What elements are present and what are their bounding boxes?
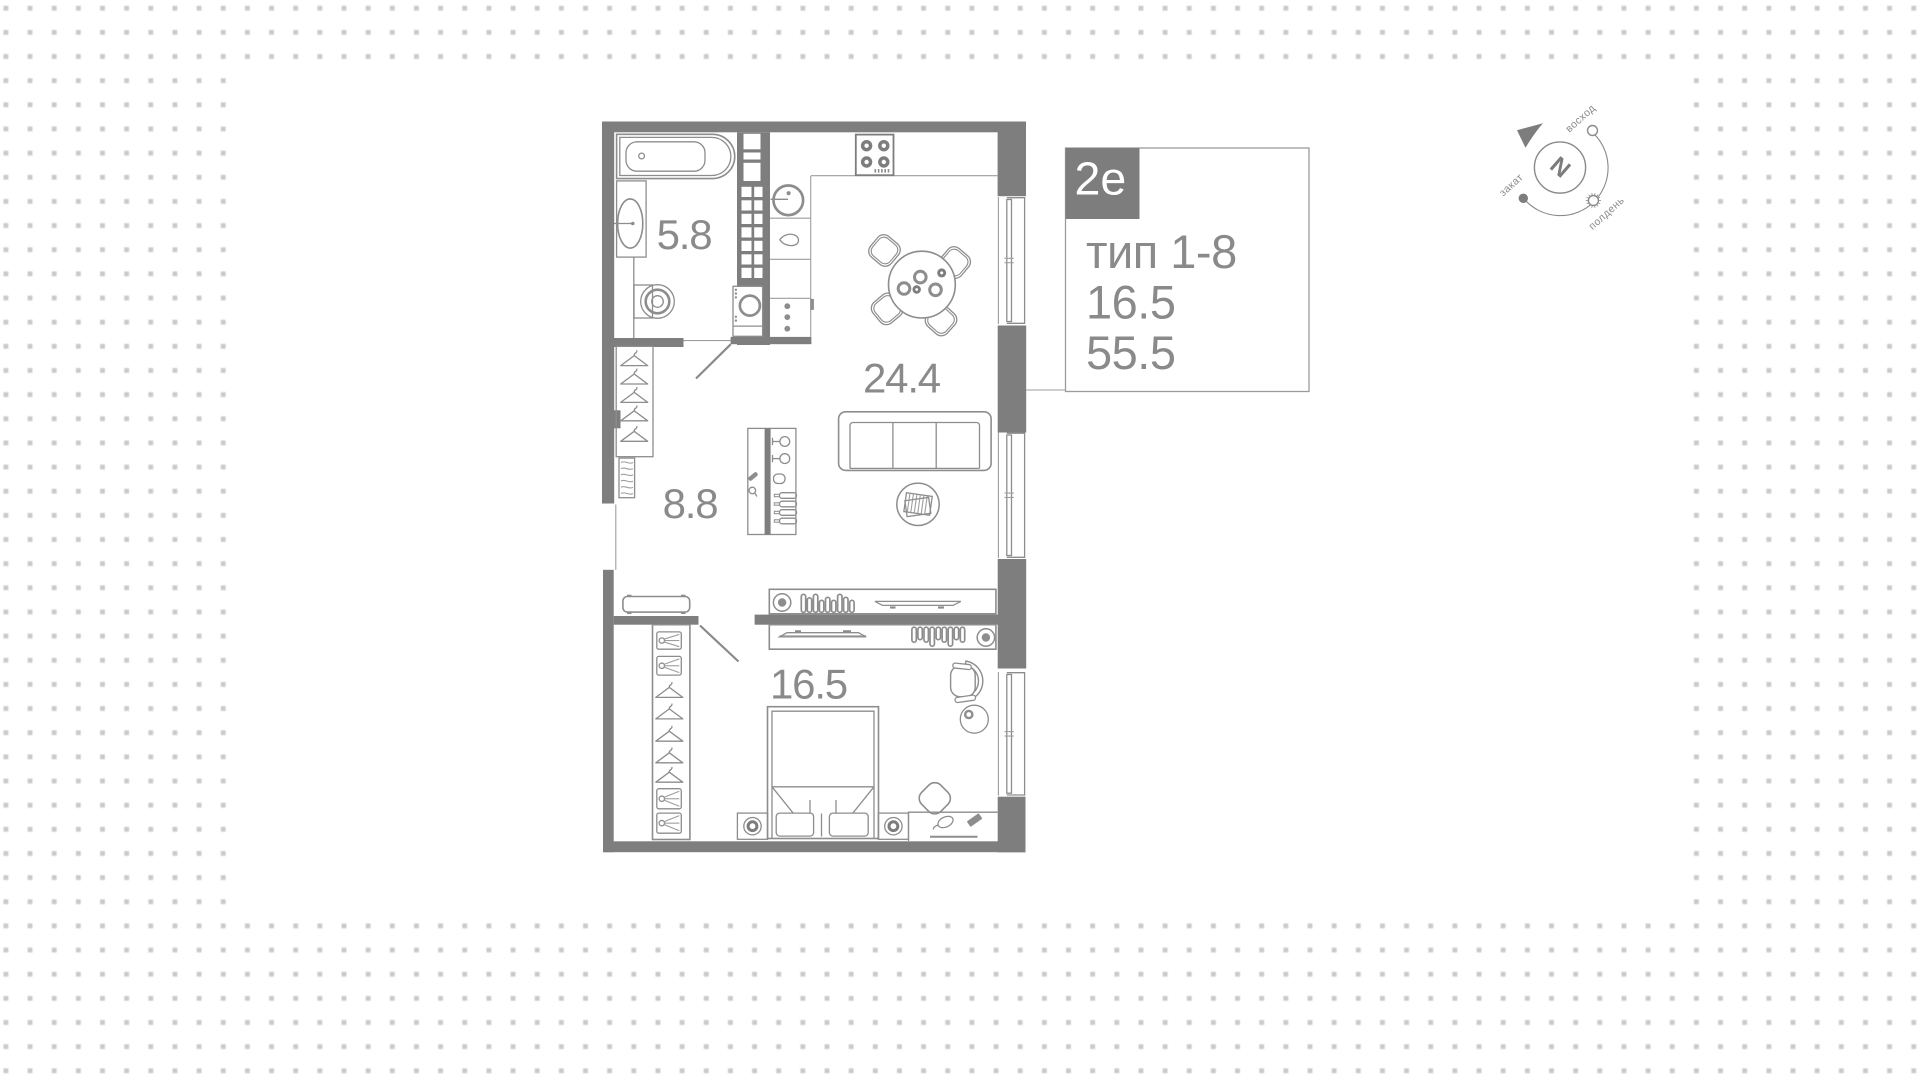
- svg-text:2e: 2e: [1075, 153, 1127, 205]
- svg-text:5.8: 5.8: [657, 211, 712, 258]
- svg-text:8.8: 8.8: [663, 480, 718, 527]
- svg-text:24.4: 24.4: [863, 355, 941, 402]
- svg-text:16.5: 16.5: [770, 661, 847, 708]
- svg-text:16.5: 16.5: [1086, 276, 1175, 329]
- svg-text:тип 1-8: тип 1-8: [1086, 225, 1237, 278]
- svg-text:55.5: 55.5: [1086, 326, 1175, 379]
